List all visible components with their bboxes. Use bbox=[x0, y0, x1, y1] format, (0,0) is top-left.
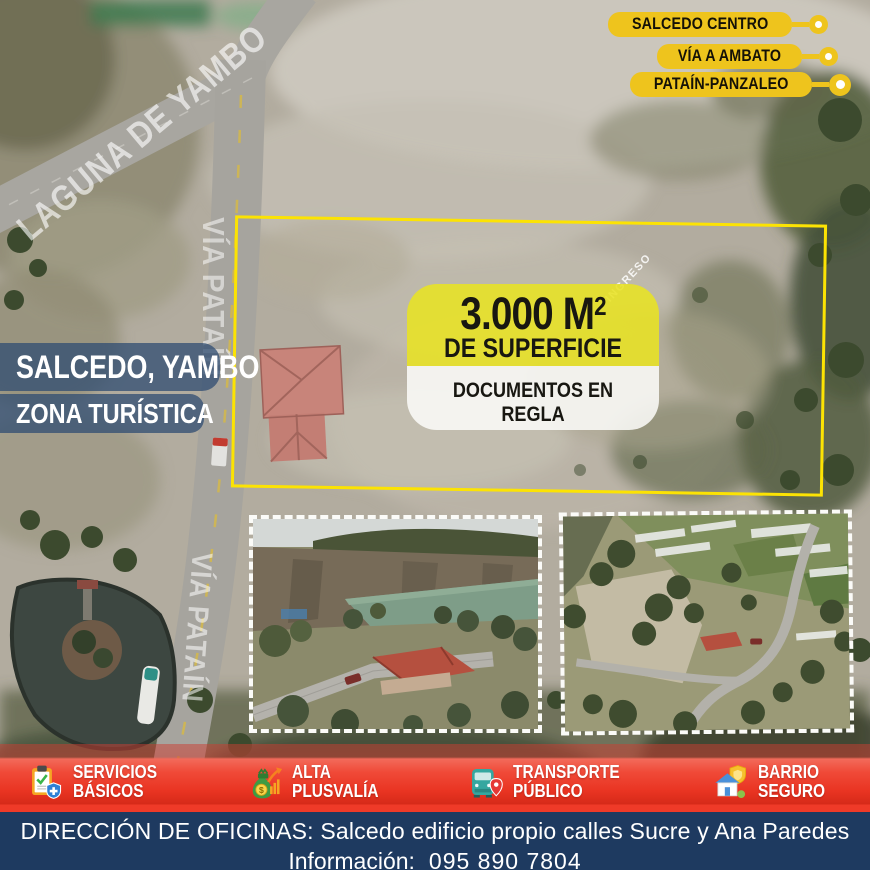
badge-salcedo-centro: SALCEDO CENTRO bbox=[608, 12, 828, 37]
feature-alta-plusvalia: $ ALTA PLUSVALÍA bbox=[245, 763, 393, 801]
feature-line1: ALTA bbox=[292, 763, 379, 782]
badge-label: VÍA A AMBATO bbox=[678, 46, 781, 66]
feature-servicios-basicos: SERVICIOS BÁSICOS bbox=[26, 763, 171, 801]
feature-barrio-seguro: BARRIO SEGURO bbox=[711, 763, 836, 801]
feature-line2: BÁSICOS bbox=[73, 782, 157, 801]
feature-line1: BARRIO bbox=[758, 763, 825, 782]
contact-line: Información:095 890 7804 bbox=[0, 848, 870, 870]
clipboard-check-shield-icon bbox=[26, 763, 64, 801]
badge-label: SALCEDO CENTRO bbox=[632, 14, 768, 34]
badge-connector bbox=[812, 82, 829, 87]
property-ad-poster: SALCEDO CENTRO VÍA A AMBATO PATAÍN-PANZA… bbox=[0, 0, 870, 870]
office-address-line: DIRECCIÓN DE OFICINAS: Salcedo edificio … bbox=[0, 818, 870, 845]
info-label: Información: bbox=[288, 848, 415, 870]
lake-view-image bbox=[253, 519, 538, 729]
location-ribbon-city: SALCEDO, YAMBO bbox=[0, 343, 220, 391]
area-number: 3.000 M bbox=[460, 288, 594, 339]
feature-line1: SERVICIOS bbox=[73, 763, 157, 782]
feature-label: SERVICIOS BÁSICOS bbox=[73, 763, 157, 800]
road-label-via-patain-upper: VÍA PATAÍN bbox=[195, 162, 231, 432]
feature-label: TRANSPORTE PÚBLICO bbox=[513, 763, 620, 800]
badge-dot-icon bbox=[829, 74, 851, 96]
phone-number: 095 890 7804 bbox=[429, 848, 582, 870]
truck bbox=[211, 437, 228, 466]
area-exponent: 2 bbox=[594, 291, 606, 321]
plot-area-caption: DE SUPERFICIE bbox=[425, 335, 642, 362]
plot-documents-label: DOCUMENTOS EN REGLA bbox=[425, 379, 642, 427]
plot-area-value: 3.000 M2 bbox=[425, 291, 642, 336]
badge-via-a-ambato: VÍA A AMBATO bbox=[657, 44, 838, 69]
badge-dot-icon bbox=[809, 15, 828, 34]
plot-documents-section: DOCUMENTOS EN REGLA bbox=[407, 366, 659, 430]
badge-pill: PATAÍN-PANZALEO bbox=[630, 72, 812, 97]
features-row: SERVICIOS BÁSICOS $ bbox=[0, 757, 870, 807]
svg-text:$: $ bbox=[259, 785, 264, 795]
road-fields-image bbox=[563, 514, 850, 732]
feature-line2: PÚBLICO bbox=[513, 782, 620, 801]
feature-line2: SEGURO bbox=[758, 782, 825, 801]
feature-line2: PLUSVALÍA bbox=[292, 782, 379, 801]
badge-dot-icon bbox=[819, 47, 838, 66]
location-zone-label: ZONA TURÍSTICA bbox=[16, 398, 214, 430]
feature-label: ALTA PLUSVALÍA bbox=[292, 763, 379, 800]
feature-label: BARRIO SEGURO bbox=[758, 763, 825, 800]
badge-pill: SALCEDO CENTRO bbox=[608, 12, 792, 37]
badge-label: PATAÍN-PANZALEO bbox=[653, 74, 788, 94]
house-shield-icon bbox=[711, 763, 749, 801]
feature-line1: TRANSPORTE bbox=[513, 763, 620, 782]
bus-location-pin-icon bbox=[466, 763, 504, 801]
badge-connector bbox=[792, 22, 809, 27]
badge-connector bbox=[802, 54, 819, 59]
features-band: SERVICIOS BÁSICOS $ bbox=[0, 744, 870, 812]
feature-transporte-publico: TRANSPORTE PÚBLICO bbox=[466, 763, 637, 801]
plot-area-section: 3.000 M2 DE SUPERFICIE bbox=[407, 284, 659, 366]
badge-patain-panzaleo: PATAÍN-PANZALEO bbox=[630, 72, 851, 97]
inset-photo-lake-view bbox=[249, 515, 542, 733]
inset-photo-road-fields-view bbox=[559, 509, 854, 735]
plot-info-card: 3.000 M2 DE SUPERFICIE DOCUMENTOS EN REG… bbox=[407, 284, 659, 430]
footer-band: DIRECCIÓN DE OFICINAS: Salcedo edificio … bbox=[0, 812, 870, 870]
location-city-label: SALCEDO, YAMBO bbox=[16, 349, 259, 386]
money-bag-growth-icon: $ bbox=[245, 763, 283, 801]
location-ribbon-zone: ZONA TURÍSTICA bbox=[0, 394, 204, 433]
badge-pill: VÍA A AMBATO bbox=[657, 44, 802, 69]
